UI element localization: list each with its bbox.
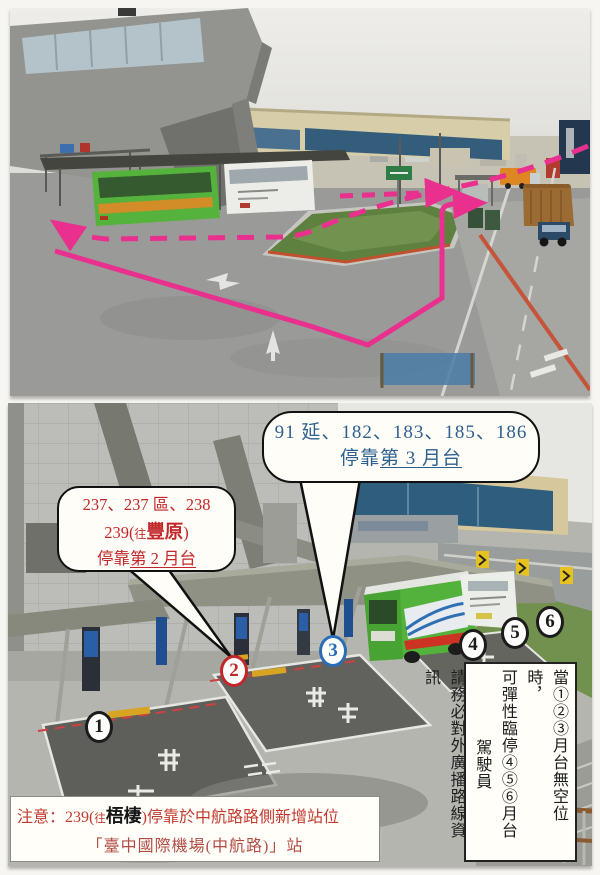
platform-marker-3: 3: [319, 635, 347, 667]
scanned-notice-page: { "document": { "type": "scanned bus-pla…: [0, 0, 600, 875]
callout-blue-platform3: 91 延、182、183、185、186 停靠第 3 月台: [262, 411, 540, 483]
notice-line1: 注意：239(往梧棲)停靠於中航路路側新增站位: [17, 800, 373, 833]
callout-blue-line2: 停靠第 3 月台: [264, 446, 538, 472]
platform-marker-2: 2: [220, 655, 248, 687]
callout-red-platform2: 237、237 區、238 239(往豐原) 停靠第 2 月台: [57, 486, 236, 572]
blue-roadside-sign: [380, 353, 475, 388]
vertical-note-text: 當①②③月台無空位時， 可彈性臨停④⑤⑥月台 駕駛員 請務必對外廣播路線資訊: [470, 669, 571, 855]
callout-blue-line1: 91 延、182、183、185、186: [264, 420, 538, 446]
platform-marker-1: 1: [85, 711, 113, 743]
notice-box: 注意：239(往梧棲)停靠於中航路路側新增站位 「臺中國際機場(中航路)」站: [10, 796, 380, 862]
white-bus-top: [224, 160, 315, 214]
green-bus-top: [92, 166, 220, 226]
vertical-note-col3: 駕駛員: [469, 739, 495, 855]
vertical-note-col1: 當①②③月台無空位時，: [520, 669, 571, 855]
platform-marker-4: 4: [459, 629, 487, 661]
vertical-note-col2: 可彈性臨停④⑤⑥月台: [494, 669, 520, 855]
callout-red-line2: 239(往豐原): [59, 518, 234, 547]
callout-red-line1: 237、237 區、238: [59, 492, 234, 518]
vertical-driver-note: 當①②③月台無空位時， 可彈性臨停④⑤⑥月台 駕駛員 請務必對外廣播路線資訊: [464, 662, 577, 862]
top-photo-curbside-route: [10, 8, 590, 396]
callout-red-line3: 停靠第 2 月台: [59, 546, 234, 572]
notice-line2: 「臺中國際機場(中航路)」站: [17, 833, 373, 862]
platform-marker-5: 5: [501, 617, 529, 649]
platform-marker-6: 6: [536, 606, 564, 638]
vertical-note-col4: 請務必對外廣播路線資訊: [417, 669, 468, 855]
top-photo-scene: [10, 8, 590, 396]
